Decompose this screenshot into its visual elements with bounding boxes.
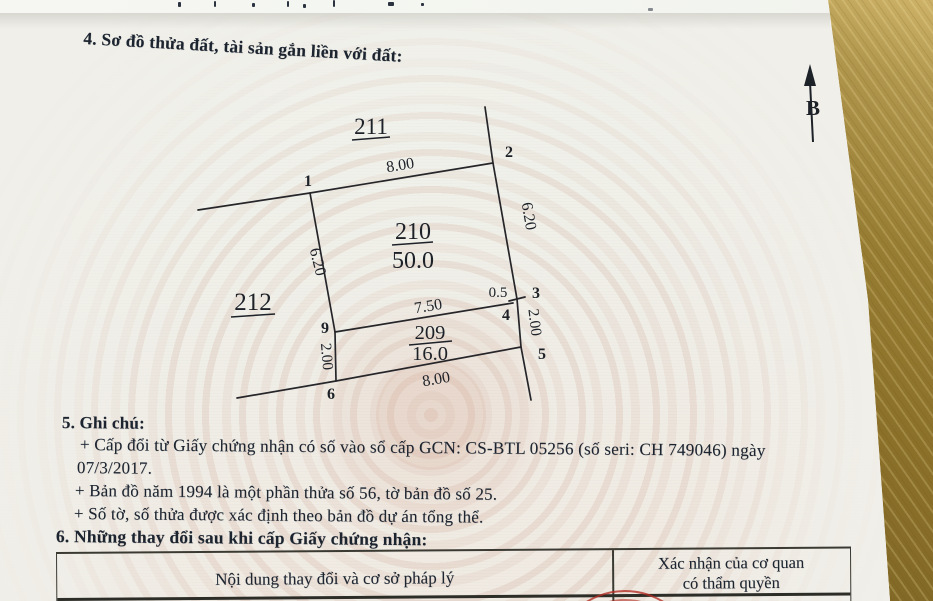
plot-210-area: 50.0 — [392, 248, 434, 274]
note-line-3: + Bản đồ năm 1994 là một phần thửa số 56… — [75, 481, 497, 505]
vertex-6: 6 — [327, 386, 335, 403]
vertex-9: 9 — [321, 320, 329, 337]
length-offset: 0.5 — [489, 285, 508, 301]
vertex-3: 3 — [532, 285, 540, 302]
changes-table: Nội dung thay đổi và cơ sở pháp lý Xác n… — [56, 546, 851, 601]
note-line-2: 07/3/2017. — [77, 458, 152, 479]
plot-212-label: 212 — [234, 289, 272, 316]
note-line-4: + Số tờ, số thửa được xác định theo bản … — [74, 504, 484, 528]
vertex-5: 5 — [538, 346, 546, 363]
table-header-authority: Xác nhận của cơ quan có thẩm quyền — [613, 552, 849, 594]
length-right-lower: 2.00 — [524, 308, 544, 337]
plot-209-label: 209 — [415, 322, 446, 344]
table-header-bottom-border — [57, 592, 850, 600]
length-left-lower: 2.00 — [317, 342, 336, 371]
length-top: 8.00 — [385, 155, 415, 176]
plot-209-area: 16.0 — [412, 343, 448, 365]
vertex-4: 4 — [502, 307, 510, 324]
length-bottom: 8.00 — [421, 369, 452, 391]
table-header-authority-line2: có thẩm quyền — [613, 572, 849, 594]
section6-heading: 6. Những thay đổi sau khi cấp Giấy chứng… — [56, 526, 428, 550]
length-right-upper: 6.20 — [518, 201, 540, 232]
vertex-2: 2 — [505, 144, 513, 161]
boundary-bottom-line — [237, 347, 521, 398]
table-header-authority-line1: Xác nhận của cơ quan — [613, 552, 849, 574]
plot-210-label: 210 — [395, 219, 431, 245]
section5-heading: 5. Ghi chú: — [62, 413, 145, 434]
plot-211-label: 211 — [354, 114, 388, 139]
table-header-content-legal: Nội dung thay đổi và cơ sở pháp lý — [57, 567, 612, 591]
length-left-upper: 6.20 — [306, 246, 329, 277]
boundary-top-line — [198, 163, 493, 210]
length-middle: 7.50 — [413, 296, 443, 317]
north-arrow-head-icon — [804, 64, 816, 86]
vertex-1: 1 — [304, 173, 312, 190]
certificate-page: 4. Sơ đồ thửa đất, tài sản gắn liền với … — [0, 0, 933, 601]
north-label: B — [806, 96, 820, 120]
photo-of-land-certificate: 4. Sơ đồ thửa đất, tài sản gắn liền với … — [0, 0, 933, 601]
